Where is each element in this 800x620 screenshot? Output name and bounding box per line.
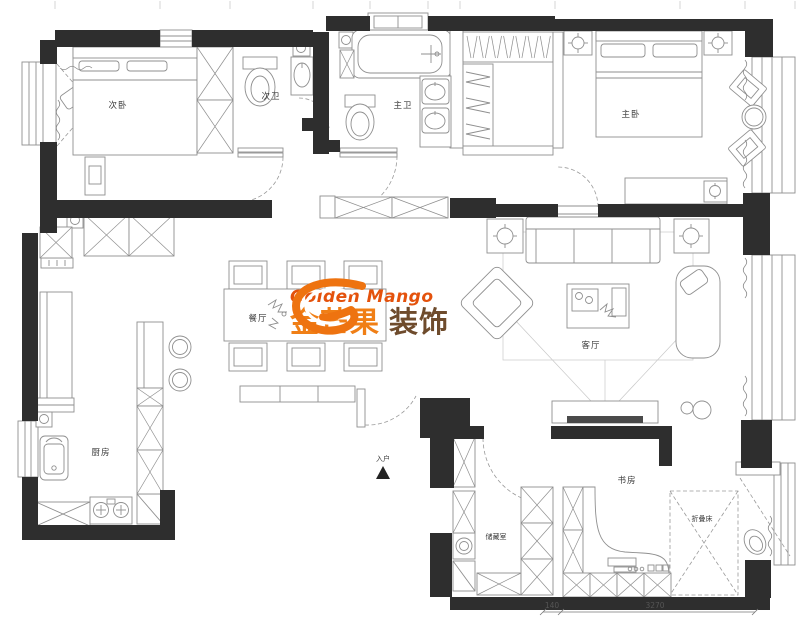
floor-plan-canvas: 140 3270 次卧 次卫 主卫 主卧 餐厅 客厅 厨房 入户 储藏室 书房 …: [0, 0, 800, 620]
bed-master: [596, 31, 702, 137]
label-master-bedroom: 主卧: [621, 109, 640, 120]
master-bath-fixtures: [339, 30, 463, 213]
storage-unit: [453, 561, 475, 591]
nightstand-lamp-icon: [704, 31, 732, 55]
stove-icon: [90, 497, 132, 524]
kitchen-sink-icon: [40, 436, 68, 480]
window-top-left: [160, 30, 192, 47]
bar-counter: [137, 322, 163, 388]
walkin-closet: [463, 32, 563, 155]
tv-cabinet: [552, 401, 658, 423]
coffee-table: [567, 284, 629, 328]
desk-chair: [740, 526, 770, 559]
shoe-cabinet: [240, 386, 355, 402]
window-kitchen: [18, 421, 38, 477]
corridor-cabinets: [320, 196, 335, 218]
dresser: [85, 157, 105, 195]
window-study: [774, 463, 795, 565]
folding-bed-outline: [670, 491, 738, 595]
entry-area: [240, 386, 416, 479]
dimension-ticks: [55, 1, 795, 9]
counter: [40, 292, 72, 408]
entry-arrow-icon: [376, 466, 390, 479]
nightstand-lamp-icon: [564, 31, 592, 55]
vanity-double-basin: [420, 76, 451, 147]
label-folding-bed: 折叠床: [692, 514, 713, 523]
stool: [693, 401, 711, 419]
label-bedroom2: 次卧: [108, 100, 127, 111]
label-study: 书房: [617, 475, 636, 486]
chaise-lounge: [676, 266, 720, 358]
bath2-fixtures: [233, 47, 283, 202]
round-table: [742, 105, 766, 129]
dimension-value: 140: [545, 601, 560, 610]
washing-machine-icon: [453, 533, 475, 559]
bay-window: [22, 62, 56, 145]
entry-door-leaf: [357, 389, 365, 427]
bar-stool: [169, 336, 191, 391]
living-room-furniture: [459, 217, 720, 423]
window-living: [752, 255, 795, 420]
label-entry: 入户: [376, 454, 390, 463]
toilet-icon: [345, 95, 375, 140]
window-bath: [368, 13, 428, 31]
keyboard: [608, 558, 636, 566]
tv-icon: [567, 416, 643, 423]
side-table-lamp-icon: [487, 219, 523, 253]
sofa: [526, 217, 660, 263]
bed-bench: [625, 178, 727, 204]
master-bedroom-furniture: [558, 31, 767, 214]
bathtub-icon: [352, 30, 451, 78]
floor-plan-drawing: 140 3270 次卧 次卫 主卫 主卧 餐厅 客厅 厨房 入户 储藏室 书房 …: [0, 0, 800, 620]
corner-counter: [36, 502, 90, 526]
tall-cabinet: [137, 494, 163, 524]
label-bath2: 次卫: [261, 91, 280, 102]
side-table-lamp-icon: [674, 219, 709, 253]
dimension-value: 3270: [645, 601, 664, 610]
label-dining: 餐厅: [248, 314, 267, 324]
stool: [681, 402, 693, 414]
kitchen-fixtures: [24, 212, 191, 526]
label-kitchen: 厨房: [91, 447, 110, 458]
label-living: 客厅: [581, 340, 600, 351]
label-storage: 储藏室: [486, 532, 507, 541]
label-master-bath: 主卫: [393, 100, 412, 111]
